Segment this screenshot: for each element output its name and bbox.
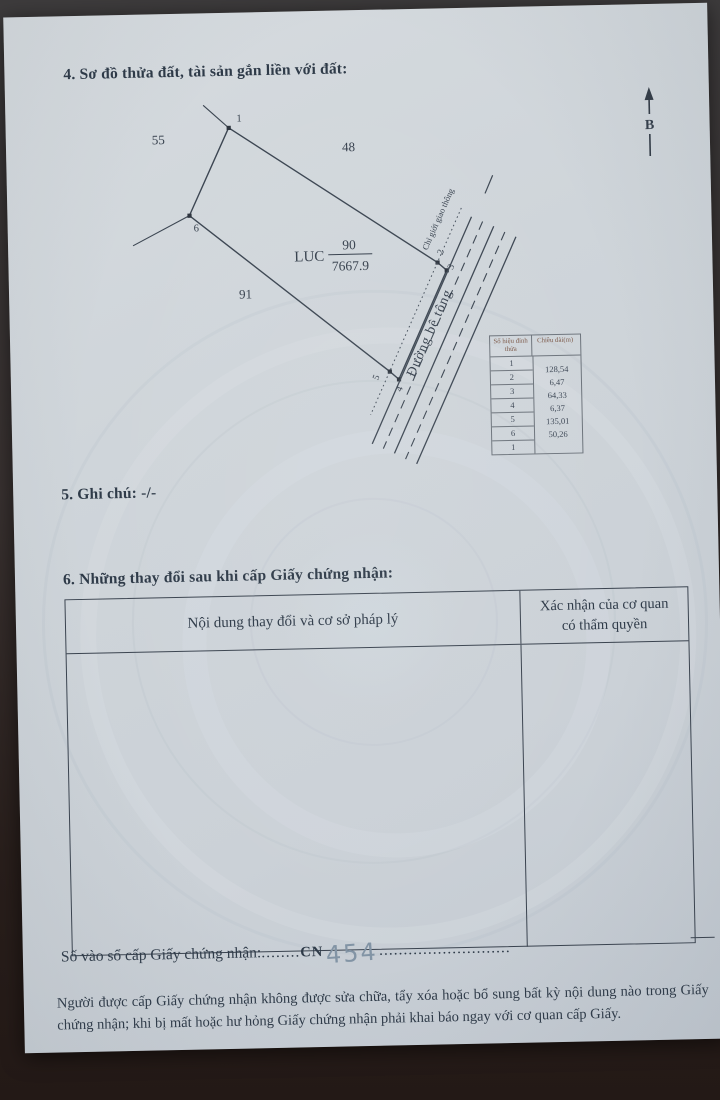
boundary-caption: Chỉ giới giao thông — [420, 186, 456, 251]
register-number-handwritten: 454 — [325, 938, 379, 970]
changes-content-cell — [67, 645, 528, 956]
footer-note: Người được cấp Giấy chứng nhận không đượ… — [57, 980, 710, 1037]
measurement-col2-header: Chiều dài(m) — [532, 335, 578, 356]
parcel-area: 7667.9 — [332, 258, 370, 274]
measurement-col1-header: Số hiệu đỉnh thửa — [490, 335, 532, 356]
edge-length: 128,54 — [534, 364, 580, 375]
changes-confirm-cell — [521, 641, 694, 946]
parcel-label: LUC 90 7667.9 — [294, 237, 373, 275]
vertex-row: 5 — [492, 413, 534, 428]
north-arrow-icon: B — [644, 87, 655, 156]
edge-length: 6,47 — [534, 377, 580, 388]
vertex-marker — [187, 214, 191, 218]
vertex-row: 4 — [491, 399, 533, 414]
changes-col2-header: Xác nhận của cơ quan có thẩm quyền — [520, 587, 688, 643]
register-code: CN — [300, 944, 323, 960]
vertex-row: 6 — [492, 427, 534, 442]
register-dots: ........................... — [379, 939, 511, 959]
vertex-label-1: 1 — [236, 114, 241, 125]
edge-length: 135,01 — [535, 416, 581, 427]
vertex-marker — [435, 260, 439, 264]
section5-title: 5. Ghi chú: -/- — [61, 484, 157, 504]
register-dots: ........ — [261, 943, 300, 961]
land-use-code: LUC — [294, 249, 324, 266]
vertex-label-2: 2 — [436, 248, 447, 257]
edge-length: 6,37 — [534, 403, 580, 414]
adjacent-parcel-top: 48 — [342, 139, 355, 154]
changes-col1-header: Nội dung thay đổi và cơ sở pháp lý — [65, 591, 521, 654]
traffic-boundary-line — [366, 208, 465, 415]
parcel-diagram: B — [3, 3, 720, 528]
vertex-marker — [388, 369, 392, 373]
edge-length: 64,33 — [534, 390, 580, 401]
changes-table: Nội dung thay đổi và cơ sở pháp lý Xác n… — [64, 586, 695, 956]
vertex-marker — [227, 126, 231, 130]
vertex-row: 1 — [492, 441, 534, 455]
vertex-label-5: 5 — [372, 373, 383, 382]
document-page: 4. Sơ đồ thửa đất, tài sản gắn liền với … — [3, 3, 720, 1054]
measurement-table: Số hiệu đỉnh thửa Chiều dài(m) 1 2 3 4 5… — [489, 333, 583, 455]
register-label: Số vào sổ cấp Giấy chứng nhận: — [61, 944, 262, 965]
section6-title: 6. Những thay đổi sau khi cấp Giấy chứng… — [63, 564, 393, 589]
vertex-row: 2 — [491, 371, 533, 386]
adjacent-parcel-left: 55 — [152, 132, 165, 147]
parcel-number: 90 — [342, 237, 356, 252]
vertex-label-6: 6 — [194, 223, 199, 234]
edge-length: 50,26 — [535, 429, 581, 440]
vertex-row: 1 — [490, 357, 532, 372]
vertex-label-4: 4 — [395, 385, 406, 394]
vertex-row: 3 — [491, 385, 533, 400]
north-label: B — [645, 118, 655, 133]
adjacent-parcel-bottom: 91 — [239, 286, 252, 301]
